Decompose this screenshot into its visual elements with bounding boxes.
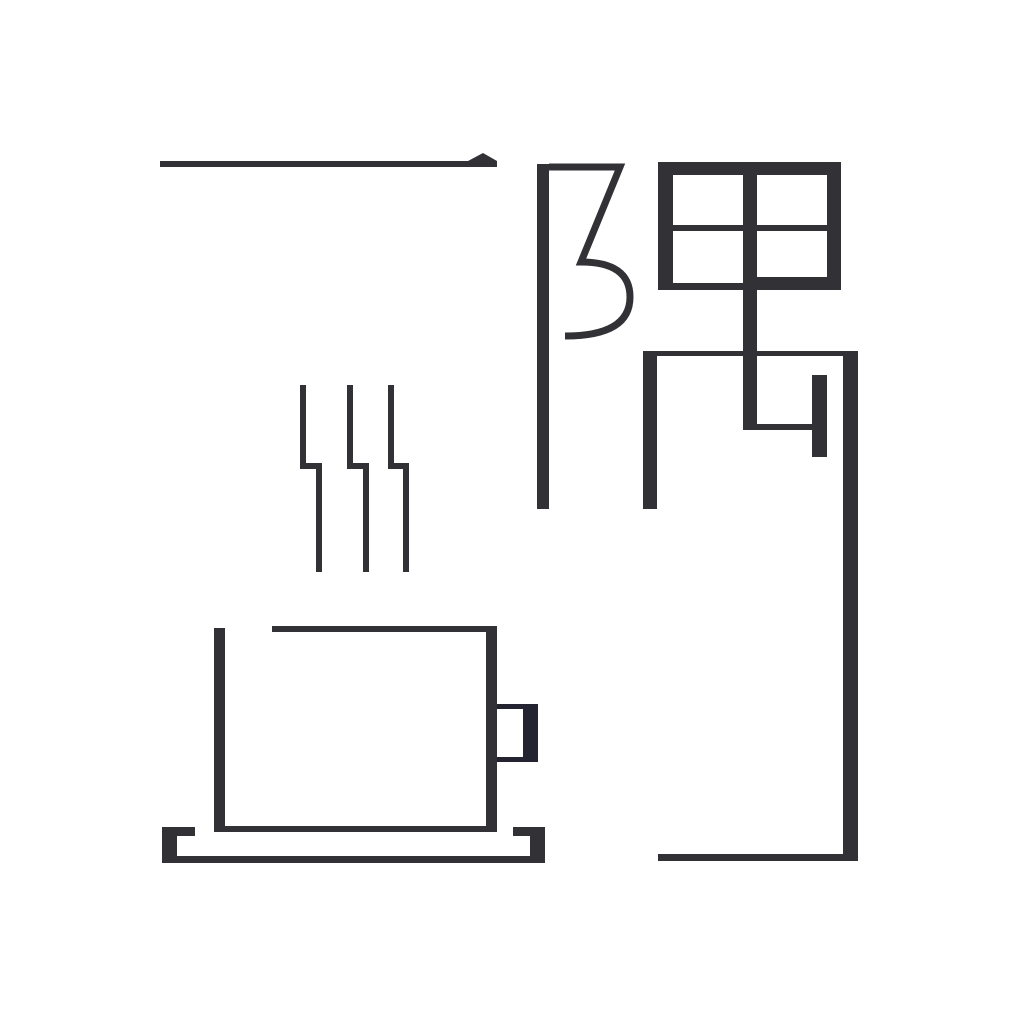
nei-left-leg xyxy=(643,351,657,509)
cup-base-line xyxy=(225,826,486,832)
tian-center-vertical xyxy=(743,162,757,430)
nei-top-bar xyxy=(643,351,858,356)
yi-stroke-tip xyxy=(468,153,497,161)
artwork-background xyxy=(0,0,1024,1024)
artwork-canvas xyxy=(0,0,1024,1024)
steam-line-2-upper xyxy=(347,385,353,469)
steam-line-3-upper xyxy=(388,385,394,469)
cup-rim xyxy=(272,626,497,632)
steam-line-2-lower xyxy=(363,463,369,572)
tian-left-border xyxy=(658,162,673,290)
nei-hook-horizontal xyxy=(743,424,812,430)
fu-radical-stem xyxy=(537,164,549,509)
tian-bottom-border-left xyxy=(673,283,743,290)
saucer-base xyxy=(162,856,545,863)
nei-hook-bar xyxy=(812,375,827,457)
cup-right-wall xyxy=(486,626,497,832)
saucer-rim-left xyxy=(162,827,195,836)
tian-center-horizontal xyxy=(673,225,827,231)
fu-radical-curl xyxy=(549,167,630,336)
steam-line-1-lower xyxy=(316,463,322,572)
cup-handle-bottom-bar xyxy=(497,757,538,762)
yi-stroke-bar xyxy=(160,161,497,167)
tian-bottom-border-right xyxy=(757,277,827,290)
cup-handle-right-bar xyxy=(523,704,538,762)
steam-line-1-upper xyxy=(300,385,306,469)
nei-bottom-bar xyxy=(658,854,858,861)
nei-right-leg xyxy=(843,351,858,861)
tian-right-border xyxy=(827,162,841,290)
steam-line-3-lower xyxy=(403,463,409,572)
cup-left-wall xyxy=(214,628,225,832)
